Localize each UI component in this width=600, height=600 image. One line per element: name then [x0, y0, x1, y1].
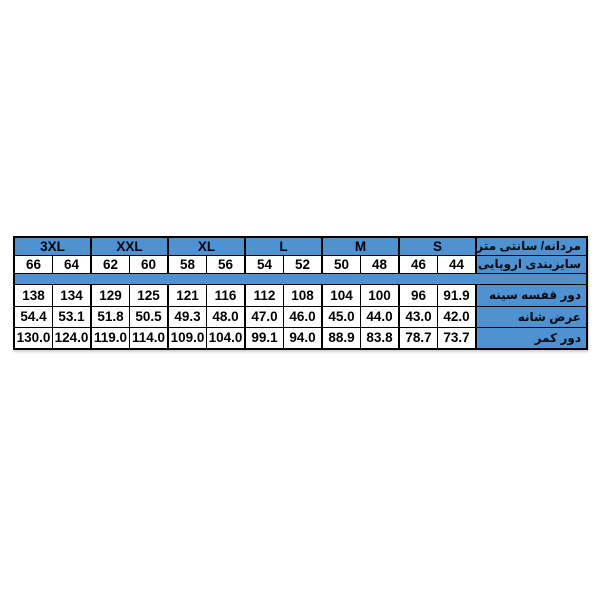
size-value-cell: 56	[207, 255, 246, 273]
measurement-cell: 99.1	[245, 327, 284, 349]
measurement-cell: 104.0	[207, 327, 246, 349]
size-value-cell: 58	[168, 255, 207, 273]
row-label-shoulder: عرض شانه	[476, 306, 587, 327]
measurement-cell: 88.9	[322, 327, 361, 349]
measurement-cell: 42.0	[438, 306, 477, 327]
size-value-cell: 66	[14, 255, 53, 273]
measurement-cell: 43.0	[399, 306, 438, 327]
measurement-cell: 116	[207, 284, 246, 306]
size-value-cell: 54	[245, 255, 284, 273]
row-label-european-sizing: سایزبندی اروپایی	[476, 255, 587, 273]
size-chart-table: 3XL XXL XL L M S مردانه/ سانتی متر 66 64…	[13, 236, 588, 350]
measurement-cell: 134	[53, 284, 92, 306]
separator-row	[14, 273, 587, 284]
shoulder-row: 54.4 53.1 51.8 50.5 49.3 48.0 47.0 46.0 …	[14, 306, 587, 327]
waist-row: 130.0 124.0 119.0 114.0 109.0 104.0 99.1…	[14, 327, 587, 349]
measurement-cell: 44.0	[361, 306, 400, 327]
measurement-cell: 124.0	[53, 327, 92, 349]
size-value-cell: 62	[91, 255, 130, 273]
measurement-cell: 138	[14, 284, 53, 306]
measurement-cell: 125	[130, 284, 169, 306]
measurement-cell: 104	[322, 284, 361, 306]
size-value-cell: 60	[130, 255, 169, 273]
measurement-cell: 114.0	[130, 327, 169, 349]
measurement-cell: 49.3	[168, 306, 207, 327]
measurement-cell: 130.0	[14, 327, 53, 349]
measurement-cell: 129	[91, 284, 130, 306]
size-value-cell: 44	[438, 255, 477, 273]
measurement-cell: 94.0	[284, 327, 323, 349]
measurement-cell: 109.0	[168, 327, 207, 349]
size-value-cell: 48	[361, 255, 400, 273]
measurement-cell: 96	[399, 284, 438, 306]
size-header-s: S	[399, 237, 476, 255]
unit-corner-label: مردانه/ سانتی متر	[476, 237, 587, 255]
measurement-cell: 73.7	[438, 327, 477, 349]
page: 3XL XXL XL L M S مردانه/ سانتی متر 66 64…	[0, 0, 600, 600]
chest-row: 138 134 129 125 121 116 112 108 104 100 …	[14, 284, 587, 306]
size-group-header-row: 3XL XXL XL L M S مردانه/ سانتی متر	[14, 237, 587, 255]
size-header-m: M	[322, 237, 399, 255]
size-header-l: L	[245, 237, 322, 255]
measurement-cell: 121	[168, 284, 207, 306]
measurement-cell: 48.0	[207, 306, 246, 327]
size-value-cell: 50	[322, 255, 361, 273]
european-sizing-row: 66 64 62 60 58 56 54 52 50 48 46 44 سایز…	[14, 255, 587, 273]
size-value-cell: 46	[399, 255, 438, 273]
row-label-chest: دور قفسه سینه	[476, 284, 587, 306]
size-header-xxl: XXL	[91, 237, 168, 255]
size-value-cell: 52	[284, 255, 323, 273]
measurement-cell: 50.5	[130, 306, 169, 327]
measurement-cell: 91.9	[438, 284, 477, 306]
measurement-cell: 78.7	[399, 327, 438, 349]
size-header-3xl: 3XL	[14, 237, 91, 255]
measurement-cell: 119.0	[91, 327, 130, 349]
measurement-cell: 51.8	[91, 306, 130, 327]
measurement-cell: 45.0	[322, 306, 361, 327]
size-header-xl: XL	[168, 237, 245, 255]
measurement-cell: 47.0	[245, 306, 284, 327]
row-label-waist: دور کمر	[476, 327, 587, 349]
measurement-cell: 53.1	[53, 306, 92, 327]
measurement-cell: 46.0	[284, 306, 323, 327]
measurement-cell: 112	[245, 284, 284, 306]
measurement-cell: 83.8	[361, 327, 400, 349]
measurement-cell: 108	[284, 284, 323, 306]
measurement-cell: 54.4	[14, 306, 53, 327]
separator-band	[14, 273, 587, 284]
size-value-cell: 64	[53, 255, 92, 273]
measurement-cell: 100	[361, 284, 400, 306]
